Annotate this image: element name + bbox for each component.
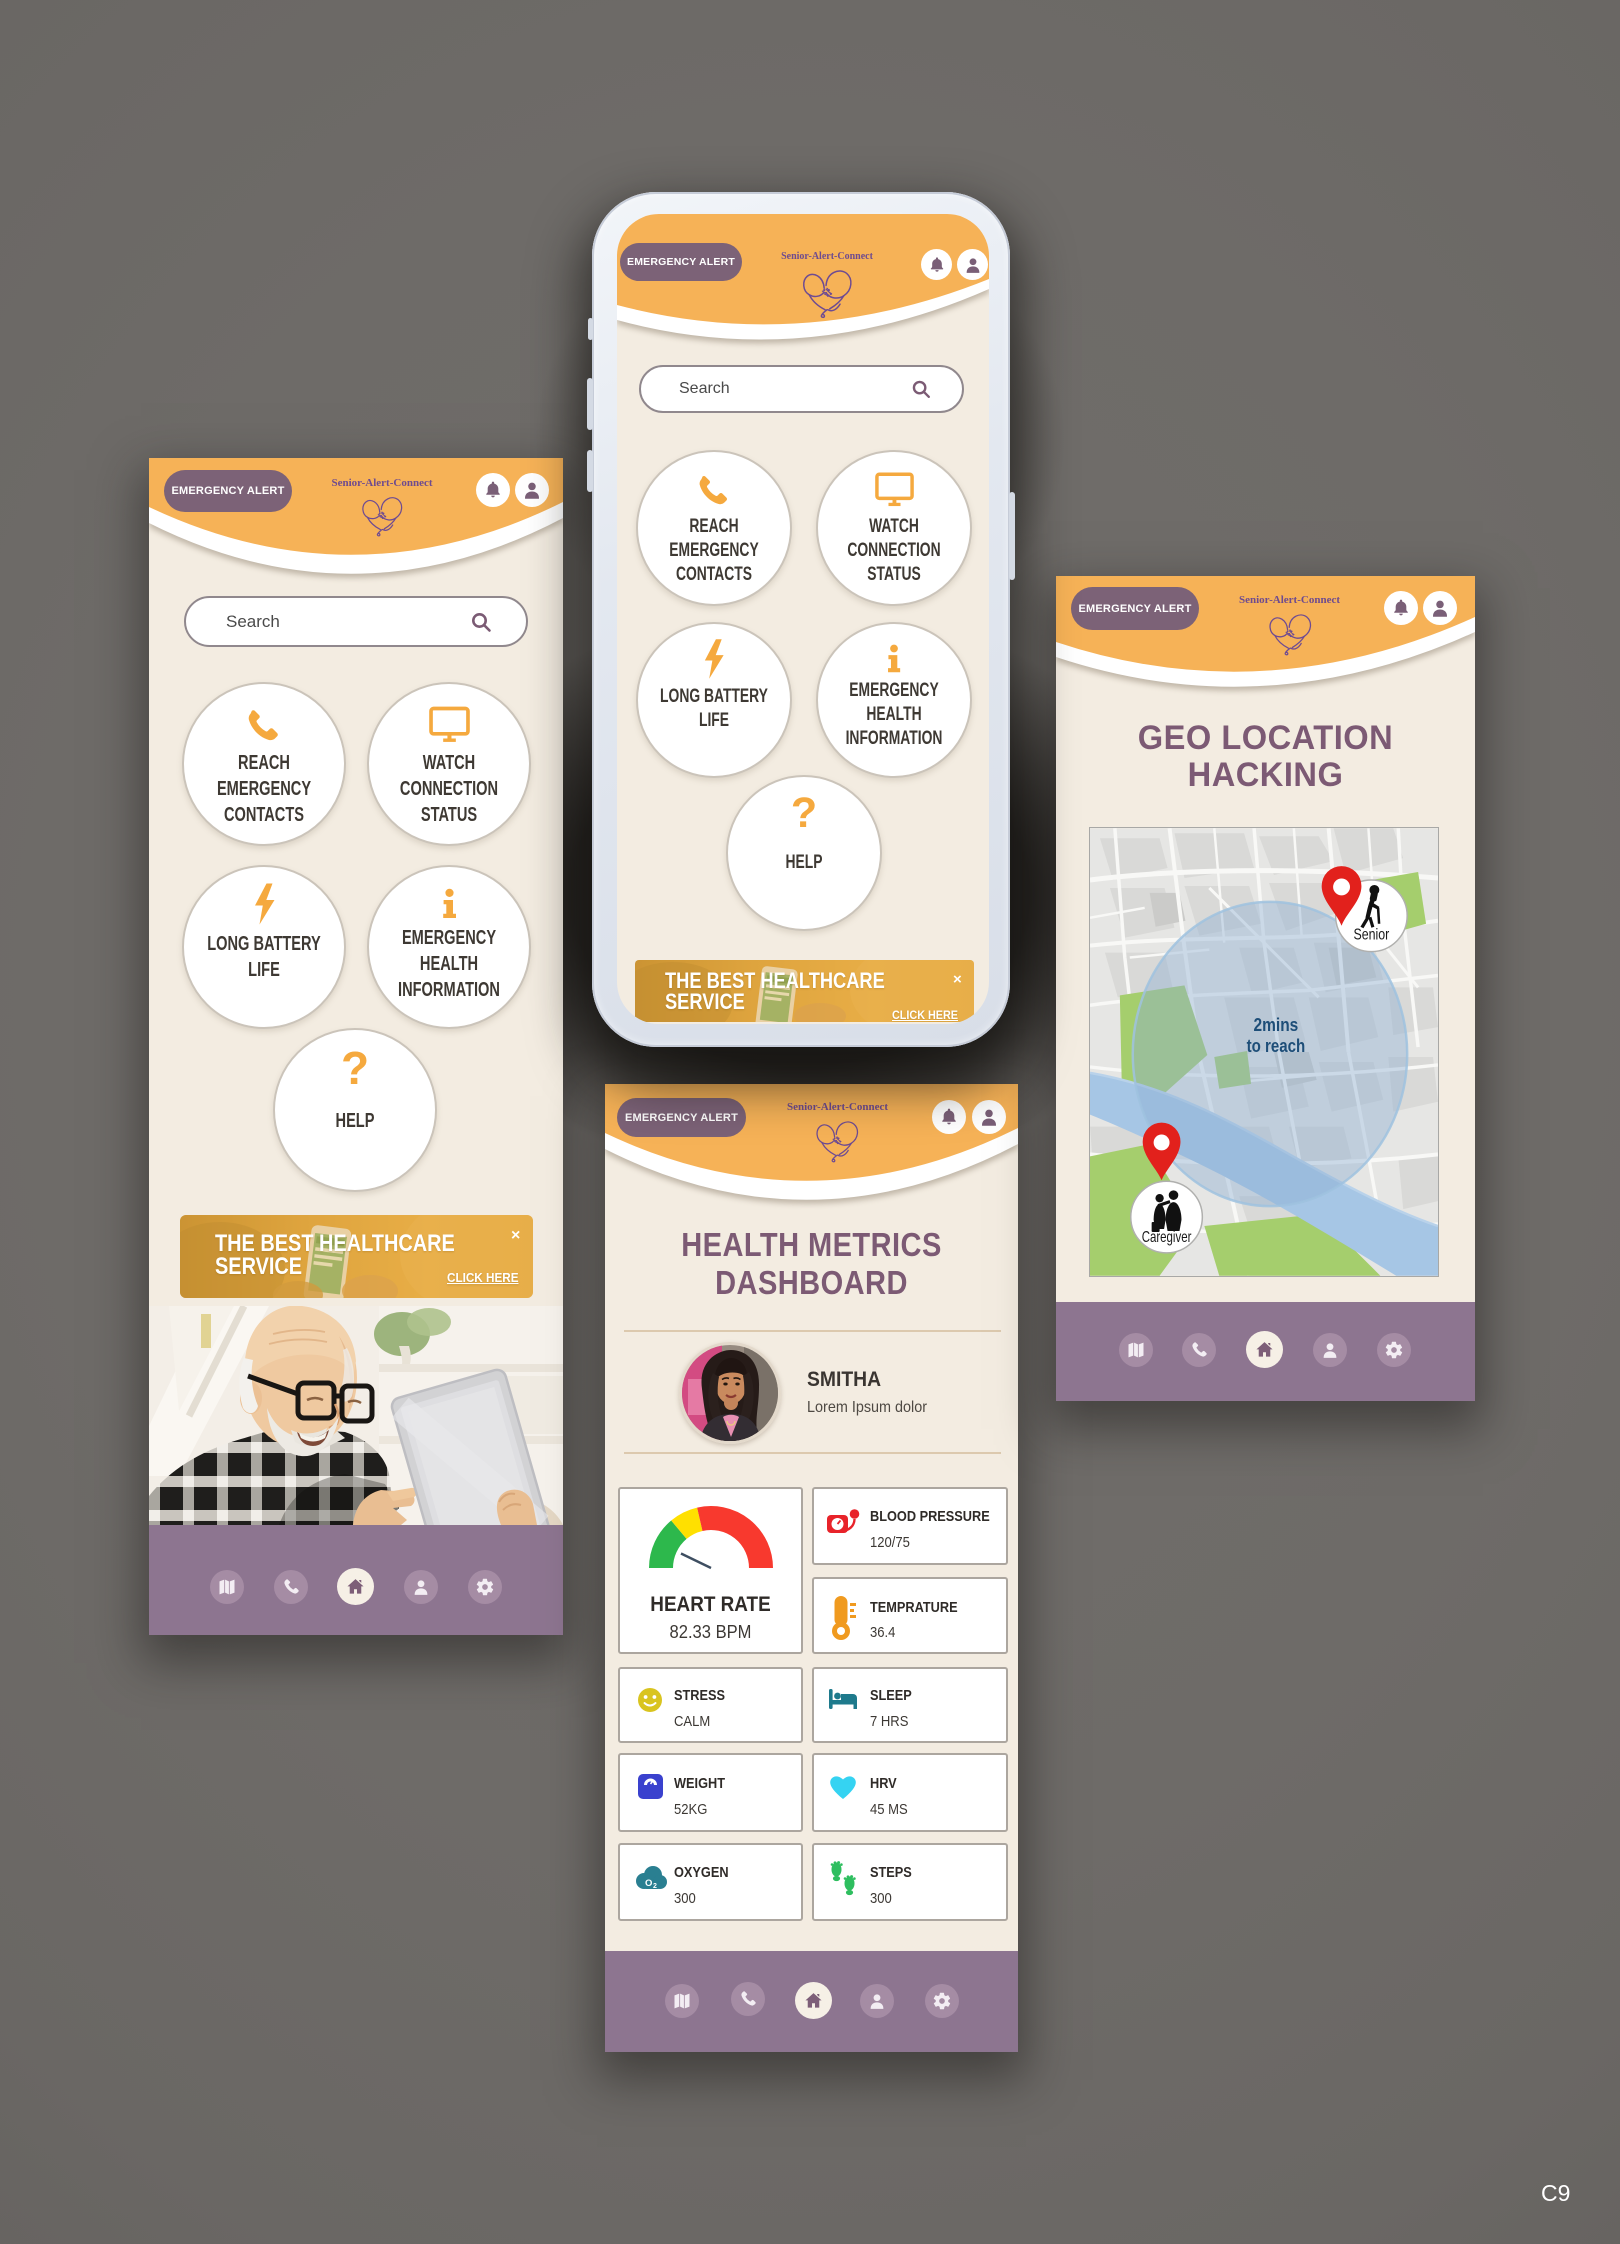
svg-text:O: O (645, 1878, 652, 1889)
svg-text:to reach: to reach (1247, 1036, 1306, 1057)
svg-text:Senior: Senior (1353, 927, 1389, 944)
svg-text:2: 2 (653, 1883, 657, 1890)
svg-text:Caregiver: Caregiver (1142, 1229, 1192, 1246)
svg-text:2mins: 2mins (1254, 1015, 1299, 1036)
